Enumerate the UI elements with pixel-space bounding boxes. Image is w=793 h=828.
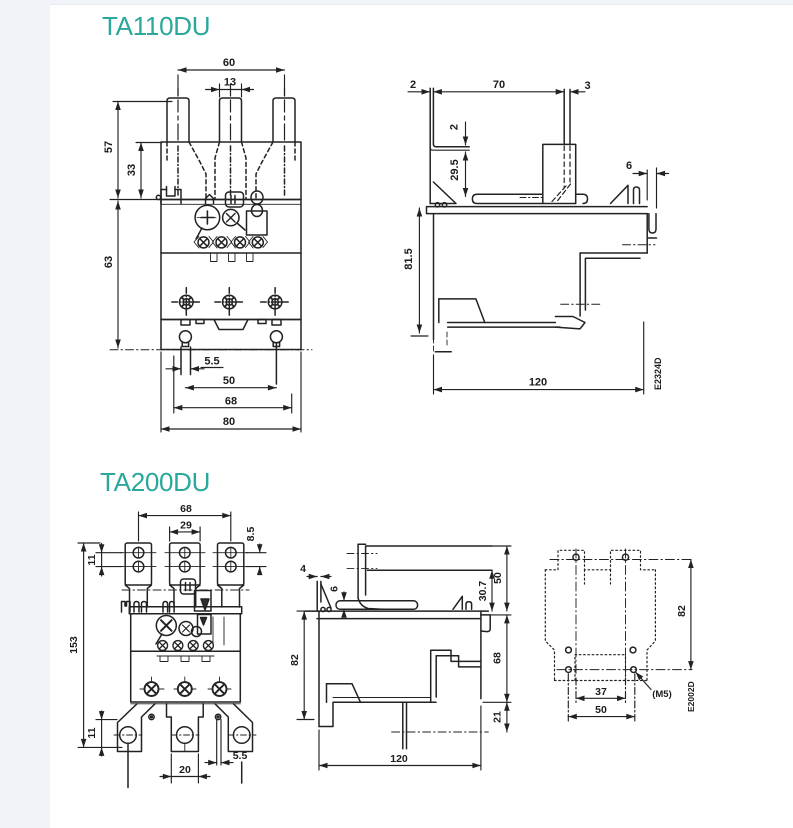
- svg-text:11: 11: [86, 727, 98, 738]
- svg-text:29: 29: [180, 520, 192, 532]
- svg-text:29.5: 29.5: [449, 159, 461, 180]
- svg-text:68: 68: [225, 396, 237, 408]
- svg-text:37: 37: [595, 686, 607, 698]
- svg-text:50: 50: [595, 704, 607, 716]
- svg-text:82: 82: [289, 654, 301, 666]
- svg-text:63: 63: [103, 256, 115, 268]
- svg-text:21: 21: [492, 711, 504, 723]
- svg-text:120: 120: [390, 753, 408, 765]
- svg-text:6: 6: [626, 160, 632, 172]
- svg-text:5.5: 5.5: [204, 356, 219, 368]
- svg-text:68: 68: [180, 503, 192, 515]
- svg-text:8.5: 8.5: [245, 527, 257, 542]
- svg-text:30.7: 30.7: [477, 581, 489, 602]
- svg-text:60: 60: [223, 57, 235, 69]
- svg-text:81.5: 81.5: [403, 248, 415, 269]
- svg-text:4: 4: [300, 563, 306, 575]
- svg-text:82: 82: [676, 605, 688, 617]
- svg-text:20: 20: [179, 764, 191, 776]
- svg-text:2: 2: [449, 124, 461, 130]
- svg-text:68: 68: [492, 652, 504, 664]
- svg-text:2: 2: [410, 79, 416, 91]
- svg-text:11: 11: [86, 554, 98, 565]
- svg-text:(M5): (M5): [652, 689, 672, 700]
- svg-text:E2324D: E2324D: [653, 357, 663, 390]
- svg-text:6: 6: [329, 586, 341, 592]
- svg-text:3: 3: [584, 80, 590, 92]
- svg-text:33: 33: [126, 164, 138, 176]
- svg-text:70: 70: [493, 79, 505, 91]
- svg-text:80: 80: [223, 416, 235, 428]
- svg-text:57: 57: [103, 141, 115, 153]
- svg-text:5.5: 5.5: [233, 750, 248, 762]
- svg-text:50: 50: [223, 375, 235, 387]
- svg-text:13: 13: [224, 77, 236, 89]
- svg-text:120: 120: [529, 377, 547, 389]
- svg-text:153: 153: [68, 636, 80, 654]
- svg-text:50: 50: [492, 572, 504, 584]
- svg-text:E2002D: E2002D: [686, 681, 696, 712]
